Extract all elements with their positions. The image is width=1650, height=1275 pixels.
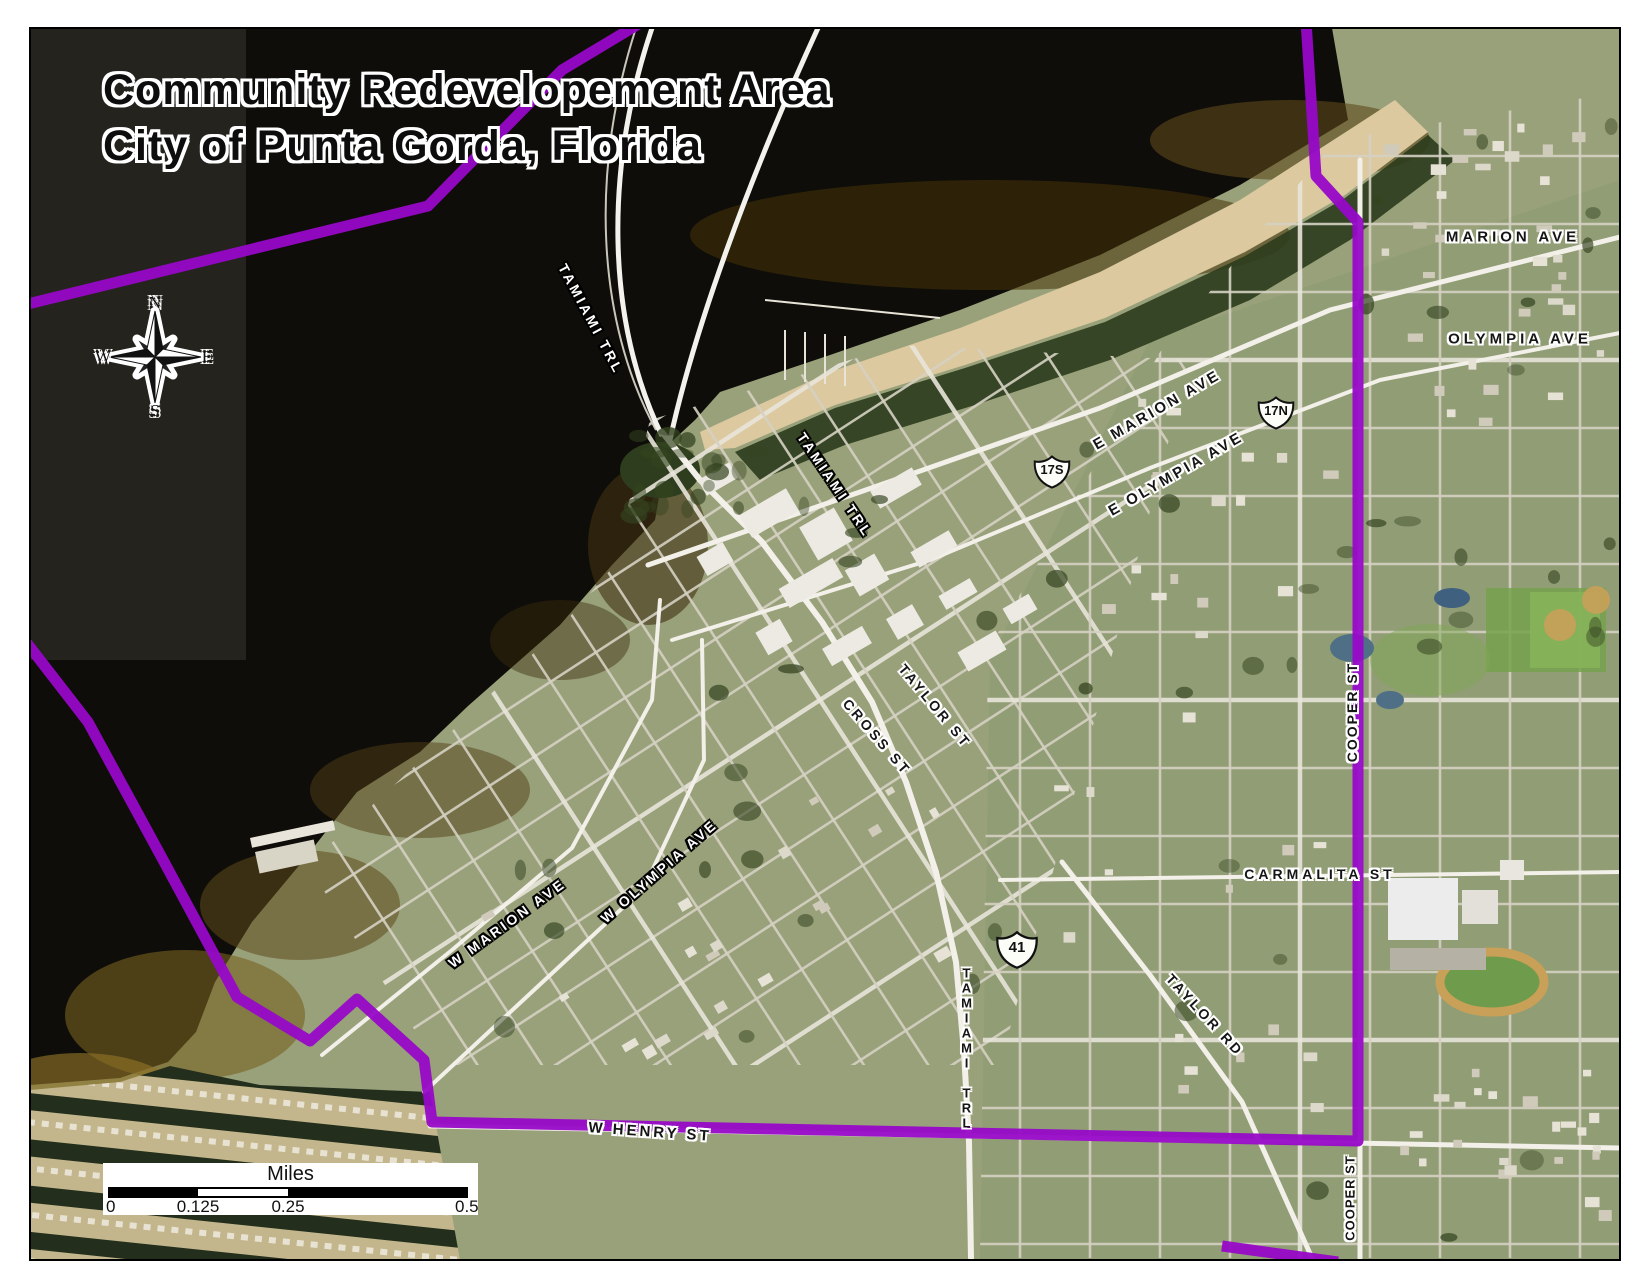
us-17n-shield: 17N: [1256, 396, 1296, 430]
us-41-shield-label: 41: [994, 939, 1040, 956]
compass-east-label: E: [202, 347, 212, 367]
us-17s-shield: 17S: [1032, 455, 1072, 489]
scale-bar-segment: [198, 1189, 288, 1196]
street-label-marion-ave: MARION AVE: [1446, 229, 1580, 246]
compass-north-label: N: [149, 293, 161, 313]
map-title-line1: Community Redevelopement Area: [103, 62, 831, 118]
street-label-carmalita-st: CARMALITA ST: [1244, 866, 1395, 882]
us-41-shield: 41: [994, 931, 1040, 969]
street-label-cooper-st-south: COOPER ST: [1343, 1155, 1358, 1241]
aerial-basemap: [0, 0, 1650, 1275]
map-page: Community Redevelopement Area City of Pu…: [0, 0, 1650, 1275]
us-17n-shield-label: 17N: [1256, 403, 1296, 418]
scale-bar-units: Miles: [103, 1163, 478, 1186]
street-label-olympia-ave: OLYMPIA AVE: [1448, 331, 1592, 348]
scale-tick-0: 0: [106, 1197, 115, 1217]
compass-rose: [97, 299, 213, 415]
us-17s-shield-label: 17S: [1032, 462, 1072, 477]
street-label-tamiami-trl-south: TAMIAMI TRL: [959, 966, 973, 1131]
scale-tick-025: 0.25: [271, 1197, 304, 1217]
map-title: Community Redevelopement Area City of Pu…: [103, 62, 831, 174]
scale-bar: Miles 0 0.125 0.25 0.5: [103, 1163, 478, 1215]
compass-south-label: S: [150, 401, 159, 421]
scale-tick-0125: 0.125: [177, 1197, 220, 1217]
street-label-cooper-st-mid: COOPER ST: [1344, 662, 1360, 762]
map-title-line2: City of Punta Gorda, Florida: [103, 118, 831, 174]
compass-west-label: W: [95, 347, 111, 367]
scale-tick-05: 0.5: [455, 1197, 479, 1217]
